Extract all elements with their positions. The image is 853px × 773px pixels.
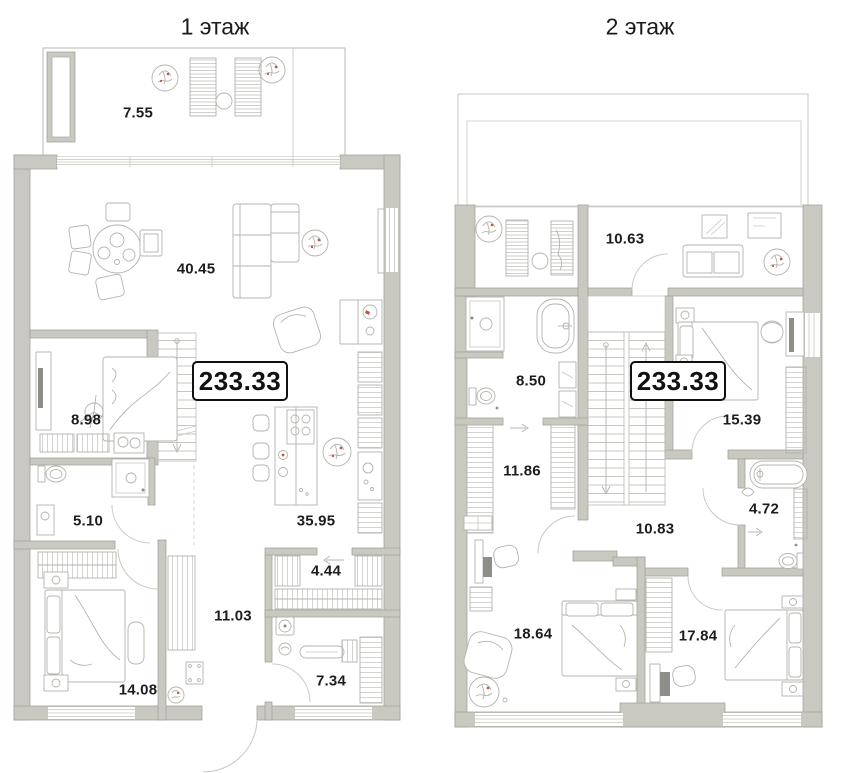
plant-symbol bbox=[323, 438, 351, 466]
desk-symbol bbox=[464, 516, 520, 611]
room-area-label-hall: 10.83 bbox=[636, 521, 675, 538]
room-area-label-living: 40.45 bbox=[177, 261, 216, 278]
toilet-symbol bbox=[779, 544, 803, 569]
room-area-label-hallway: 11.03 bbox=[214, 608, 252, 625]
toilet-symbol bbox=[38, 466, 66, 482]
cabinet-symbol bbox=[559, 362, 576, 417]
bed-symbol bbox=[725, 596, 803, 696]
plant-symbol bbox=[476, 216, 502, 242]
room-area-label-terrace: 7.55 bbox=[123, 105, 153, 122]
room-area-label-bedroom: 14.08 bbox=[119, 682, 158, 699]
room-area-label-bathroom2: 4.72 bbox=[749, 501, 779, 518]
room-area-label-laundry: 7.34 bbox=[316, 673, 346, 690]
floor-plan: 1 этаж 2 этаж 7.55 40.45 8.98 5.10 35.95… bbox=[0, 0, 853, 773]
side-table-symbol bbox=[748, 213, 781, 238]
sofa-symbol bbox=[683, 245, 743, 277]
room-area-label-bedroom1: 15.39 bbox=[723, 412, 762, 429]
sun-lounger-symbol bbox=[506, 220, 573, 276]
dining-table-symbol bbox=[68, 203, 162, 300]
hall-closet-symbol bbox=[168, 556, 195, 650]
shelf-symbol bbox=[360, 637, 382, 703]
tv-console-symbol bbox=[378, 209, 384, 273]
shelf-symbol bbox=[40, 433, 144, 453]
washing-machine-symbol bbox=[276, 617, 294, 655]
bed-symbol bbox=[44, 572, 144, 691]
desk-symbol bbox=[761, 312, 806, 453]
plant-symbol bbox=[469, 677, 507, 707]
room-area-label-kitchen: 35.95 bbox=[297, 513, 336, 530]
sink-symbol bbox=[37, 505, 54, 535]
room-area-label-bedroom2: 18.64 bbox=[514, 626, 553, 643]
bathtub-symbol bbox=[537, 299, 574, 353]
room-area-label-shower: 5.10 bbox=[73, 513, 103, 530]
floor2-plan bbox=[455, 94, 822, 727]
shower-symbol bbox=[466, 297, 504, 351]
roof-outline bbox=[458, 94, 808, 206]
kitchen-counter-symbol bbox=[340, 300, 382, 533]
desk-symbol bbox=[650, 664, 697, 702]
plant-symbol bbox=[302, 230, 328, 256]
armchair-symbol bbox=[461, 629, 514, 681]
room-area-label-dressing: 11.86 bbox=[503, 463, 541, 480]
toilet-symbol bbox=[469, 388, 498, 409]
room-area-label-bathroom: 8.50 bbox=[516, 373, 546, 390]
floor2-total-area-badge: 233.33 bbox=[630, 361, 726, 401]
bed-symbol bbox=[562, 589, 637, 691]
kitchen-island-symbol bbox=[253, 407, 317, 505]
floor2-title: 2 этаж bbox=[606, 14, 675, 41]
plant-symbol bbox=[168, 687, 184, 703]
floor1-plan bbox=[14, 48, 400, 772]
room-area-label-bedroom3: 17.84 bbox=[679, 628, 718, 645]
daybed-symbol bbox=[103, 357, 177, 441]
room-area-label-closet: 4.44 bbox=[311, 563, 341, 580]
shower-symbol bbox=[112, 459, 149, 497]
wardrobe-symbol bbox=[646, 578, 672, 652]
console-table-symbol bbox=[186, 662, 203, 684]
ironing-board-symbol bbox=[300, 640, 357, 662]
floor1-total-area-badge: 233.33 bbox=[192, 361, 288, 401]
sofa-symbol bbox=[233, 204, 299, 326]
floor1-title: 1 этаж bbox=[181, 14, 250, 41]
room-area-label-study: 8.98 bbox=[71, 412, 101, 429]
mirror-symbol bbox=[702, 215, 727, 238]
armchair-symbol bbox=[271, 304, 323, 355]
room-area-label-lounge: 10.63 bbox=[606, 231, 645, 248]
plant-symbol bbox=[764, 249, 790, 275]
